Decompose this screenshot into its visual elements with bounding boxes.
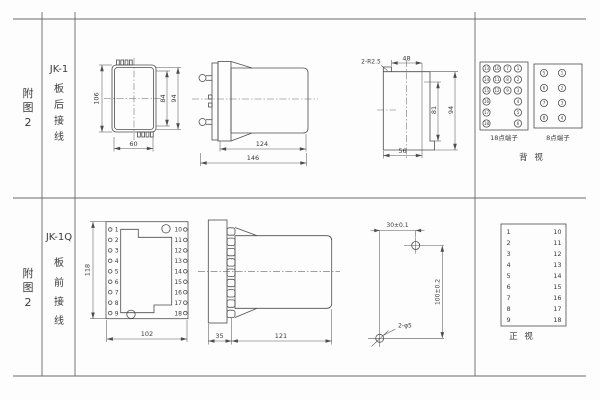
terminal-list-number: 16 — [553, 294, 561, 302]
dim-56: 56 — [398, 147, 406, 155]
front-view-label: 正 视 — [509, 331, 535, 342]
terminal-screw-column — [227, 228, 235, 318]
terminal-list-number: 2 — [507, 239, 511, 247]
dim-100: 100±0.2 — [435, 279, 442, 305]
terminal-number: 14 — [484, 77, 490, 82]
terminal-number: 8 — [506, 77, 509, 82]
flange — [218, 62, 231, 142]
terminal-number: 5 — [517, 110, 520, 115]
leader-line — [381, 66, 388, 71]
terminal-circle — [108, 228, 112, 232]
screw-bump — [227, 290, 235, 297]
jk1q-side-view: 35 121 — [198, 220, 340, 345]
terminal-circle — [184, 311, 188, 315]
terminal-number: 4 — [115, 258, 119, 265]
terminal-bumps-top — [117, 60, 133, 65]
terminal-list-number: 6 — [507, 283, 511, 291]
rear-terminal-blocks: 131071141182151293164175186 18点端子 516273… — [480, 62, 582, 163]
dim-94: 94 — [447, 106, 455, 114]
terminal-bump — [129, 60, 132, 65]
dim-106: 106 — [93, 92, 101, 104]
terminal-list-number: 3 — [507, 250, 511, 258]
screw-bump — [227, 279, 235, 286]
terminal-circle — [108, 311, 112, 315]
front-terminals-left: 123456789 — [108, 227, 118, 318]
terminal-number: 10 — [174, 227, 182, 234]
terminal-number: 4 — [561, 115, 564, 120]
terminal-circle — [184, 301, 188, 305]
terminal-number: 16 — [484, 99, 490, 104]
model-label: JK-1Q — [45, 232, 72, 243]
terminal-bump — [146, 132, 149, 137]
terminal-number: 16 — [174, 289, 182, 296]
drill-pattern: 30±0.1 100±0.2 2-φ5 — [368, 222, 444, 347]
terminal-number: 14 — [174, 269, 182, 276]
terminal-number: 10 — [494, 66, 500, 71]
screw-bump — [227, 248, 235, 255]
fig-label-num: 2 — [25, 116, 32, 129]
terminal-circle — [184, 259, 188, 263]
terminal-number: 15 — [174, 279, 182, 286]
terminal-circle — [108, 238, 112, 242]
terminal-list-number: 10 — [553, 228, 561, 236]
terminal-circle — [184, 290, 188, 294]
terminal-bump — [138, 132, 141, 137]
dim-30: 30±0.1 — [386, 222, 408, 229]
dim-121: 121 — [275, 332, 287, 340]
terminal-number: 7 — [543, 100, 546, 105]
terminal-circle — [184, 249, 188, 253]
mounting-hole — [162, 225, 170, 233]
terminal-number: 8 — [115, 300, 119, 307]
drawing-sheet: 附 图 2 JK-1 板 后 接 线 附 图 2 JK-1Q 板 前 接 线 — [0, 0, 600, 400]
front-terminals-right: 101112131415161718 — [174, 227, 187, 318]
dim-124: 124 — [256, 140, 268, 148]
terminal-list-number: 8 — [507, 305, 511, 313]
dim-60: 60 — [129, 140, 137, 148]
terminal-circle — [184, 238, 188, 242]
terminal-number: 7 — [506, 66, 509, 71]
screw-bump — [227, 228, 235, 235]
corner-notch — [383, 67, 391, 72]
terminal-list-number: 4 — [507, 261, 511, 269]
dim-84: 84 — [159, 94, 167, 102]
terminal-screw-bottom — [199, 119, 212, 126]
terminal-block-8-label: 8点端子 — [546, 133, 570, 142]
terminal-block-8-outline — [534, 64, 582, 128]
screw-head — [199, 119, 206, 126]
terminal-list-number: 7 — [507, 294, 511, 302]
terminal-number: 11 — [174, 237, 182, 244]
dim-48: 48 — [402, 55, 410, 63]
terminal-list-number: 15 — [553, 283, 561, 291]
jk1q-front-view: 123456789 101112131415161718 118 102 — [84, 222, 189, 342]
dim-102: 102 — [141, 330, 153, 338]
screw-bump — [227, 310, 235, 317]
terminal-circle — [184, 228, 188, 232]
terminal-circle — [108, 280, 112, 284]
terminal-bump — [117, 60, 120, 65]
dim-146: 146 — [247, 154, 259, 162]
terminal-list-left-column: 123456789 — [507, 228, 511, 324]
dimension-arrow — [374, 229, 380, 232]
mounting-hole — [127, 310, 135, 318]
terminal-number: 17 — [174, 300, 182, 307]
chamfer-line — [235, 228, 257, 236]
rear-view-label: 背 视 — [519, 152, 545, 163]
terminal-circle — [108, 270, 112, 274]
terminal-bump — [125, 60, 128, 65]
wiring-char: 接 — [54, 295, 64, 308]
model-label: JK-1 — [49, 64, 68, 75]
jk1-front-view: 106 84 94 60 — [93, 58, 182, 152]
terminal-number: 3 — [115, 248, 119, 255]
corner-radius-label: 2-R2.5 — [361, 59, 381, 66]
dimension-arrow — [416, 229, 422, 232]
fig-label-char: 附 — [23, 266, 34, 280]
fig-label-char: 图 — [23, 281, 34, 294]
terminal-list-number: 14 — [553, 272, 561, 280]
jk1-panel-cutout: 2-R2.5 48 81 94 56 — [361, 55, 458, 159]
mounting-plate — [212, 63, 218, 140]
terminal-number: 1 — [517, 66, 520, 71]
terminal-list-number: 9 — [507, 316, 511, 324]
terminal-circle — [184, 270, 188, 274]
leader-line — [383, 329, 396, 336]
terminal-list-number: 11 — [553, 239, 561, 247]
terminal-number: 13 — [174, 258, 182, 265]
terminal-number: 12 — [494, 88, 500, 93]
terminal-number: 2 — [115, 237, 119, 244]
terminal-number: 12 — [174, 248, 182, 255]
wiring-char: 线 — [54, 314, 64, 327]
terminal-number: 9 — [506, 88, 509, 93]
header-top-row: 附 图 2 JK-1 板 后 接 线 — [23, 64, 69, 143]
terminal-bumps-bottom — [138, 132, 154, 137]
wiring-char: 线 — [54, 130, 64, 143]
wiring-char: 板 — [54, 256, 64, 269]
terminal-number: 3 — [561, 100, 564, 105]
screw-bump — [227, 269, 235, 276]
terminal-number: 3 — [517, 88, 520, 93]
jk1-side-view: 124 146 — [192, 62, 318, 167]
dim-94: 94 — [170, 94, 178, 102]
dim-81: 81 — [430, 106, 438, 114]
inner-cutout-outline — [121, 229, 172, 312]
terminal-number: 2 — [517, 77, 520, 82]
screw-bump — [227, 238, 235, 245]
terminal-number: 6 — [543, 85, 546, 90]
wiring-char: 后 — [54, 99, 64, 111]
wiring-char: 板 — [54, 82, 64, 95]
terminal-number: 2 — [561, 85, 564, 90]
header-bottom-row: 附 图 2 JK-1Q 板 前 接 线 — [23, 232, 73, 327]
terminal-list-number: 13 — [553, 261, 561, 269]
terminal-number: 5 — [115, 269, 119, 276]
terminal-number: 17 — [484, 110, 490, 115]
fig-label-char: 图 — [23, 101, 34, 114]
terminal-bump — [209, 103, 213, 107]
hole-diameter-label: 2-φ5 — [398, 323, 412, 330]
terminal-circle — [108, 249, 112, 253]
terminal-list-right-column: 101112131415161718 — [553, 228, 561, 324]
terminal-list-number: 17 — [553, 305, 561, 313]
terminal-bump — [121, 60, 124, 65]
terminal-list-number: 1 — [507, 228, 511, 236]
screw-bump — [227, 259, 235, 266]
terminal-block-8-grid: 51627384 — [540, 69, 565, 121]
terminal-bump — [209, 95, 213, 99]
terminal-number: 9 — [115, 310, 119, 317]
fig-label-num: 2 — [25, 296, 32, 309]
chamfer-line — [235, 308, 257, 317]
cutout-outline — [383, 72, 434, 150]
dim-118: 118 — [84, 264, 92, 276]
terminal-list-number: 5 — [507, 272, 511, 280]
relay-body — [231, 68, 308, 133]
chamfer-line — [231, 62, 252, 69]
terminal-circle — [184, 280, 188, 284]
wiring-char: 前 — [54, 276, 64, 289]
terminal-number: 1 — [561, 70, 564, 75]
screw-head — [199, 75, 206, 82]
terminal-number: 15 — [484, 88, 490, 93]
terminal-number: 18 — [174, 310, 182, 317]
terminal-number: 18 — [484, 121, 490, 126]
terminal-number: 6 — [517, 121, 520, 126]
terminal-number: 13 — [484, 66, 490, 71]
terminal-circle — [108, 290, 112, 294]
terminal-list-number: 18 — [553, 316, 561, 324]
terminal-number: 6 — [115, 279, 119, 286]
screw-bump — [227, 300, 235, 307]
terminal-block-18-grid: 131071141182151293164175186 — [483, 65, 522, 127]
dim-35: 35 — [215, 332, 223, 340]
terminal-screw-top — [199, 75, 212, 82]
terminal-block-18-label: 18点端子 — [490, 133, 518, 142]
terminal-number: 1 — [115, 227, 119, 234]
terminal-number: 7 — [115, 289, 119, 296]
chamfer-line — [231, 133, 252, 141]
terminal-number: 4 — [517, 99, 520, 104]
terminal-bump — [142, 132, 145, 137]
terminal-number: 11 — [494, 77, 500, 82]
terminal-number: 8 — [543, 115, 546, 120]
terminal-list-number: 12 — [553, 250, 561, 258]
fig-label-char: 附 — [23, 86, 34, 100]
terminal-bump — [150, 132, 153, 137]
wiring-char: 接 — [54, 114, 64, 127]
technical-drawing: 附 图 2 JK-1 板 后 接 线 附 图 2 JK-1Q 板 前 接 线 — [0, 0, 600, 400]
terminal-number: 5 — [543, 70, 546, 75]
relay-body — [235, 236, 332, 309]
front-terminal-list: 123456789 101112131415161718 正 视 — [501, 224, 566, 342]
terminal-circle — [108, 259, 112, 263]
terminal-circle — [108, 301, 112, 305]
